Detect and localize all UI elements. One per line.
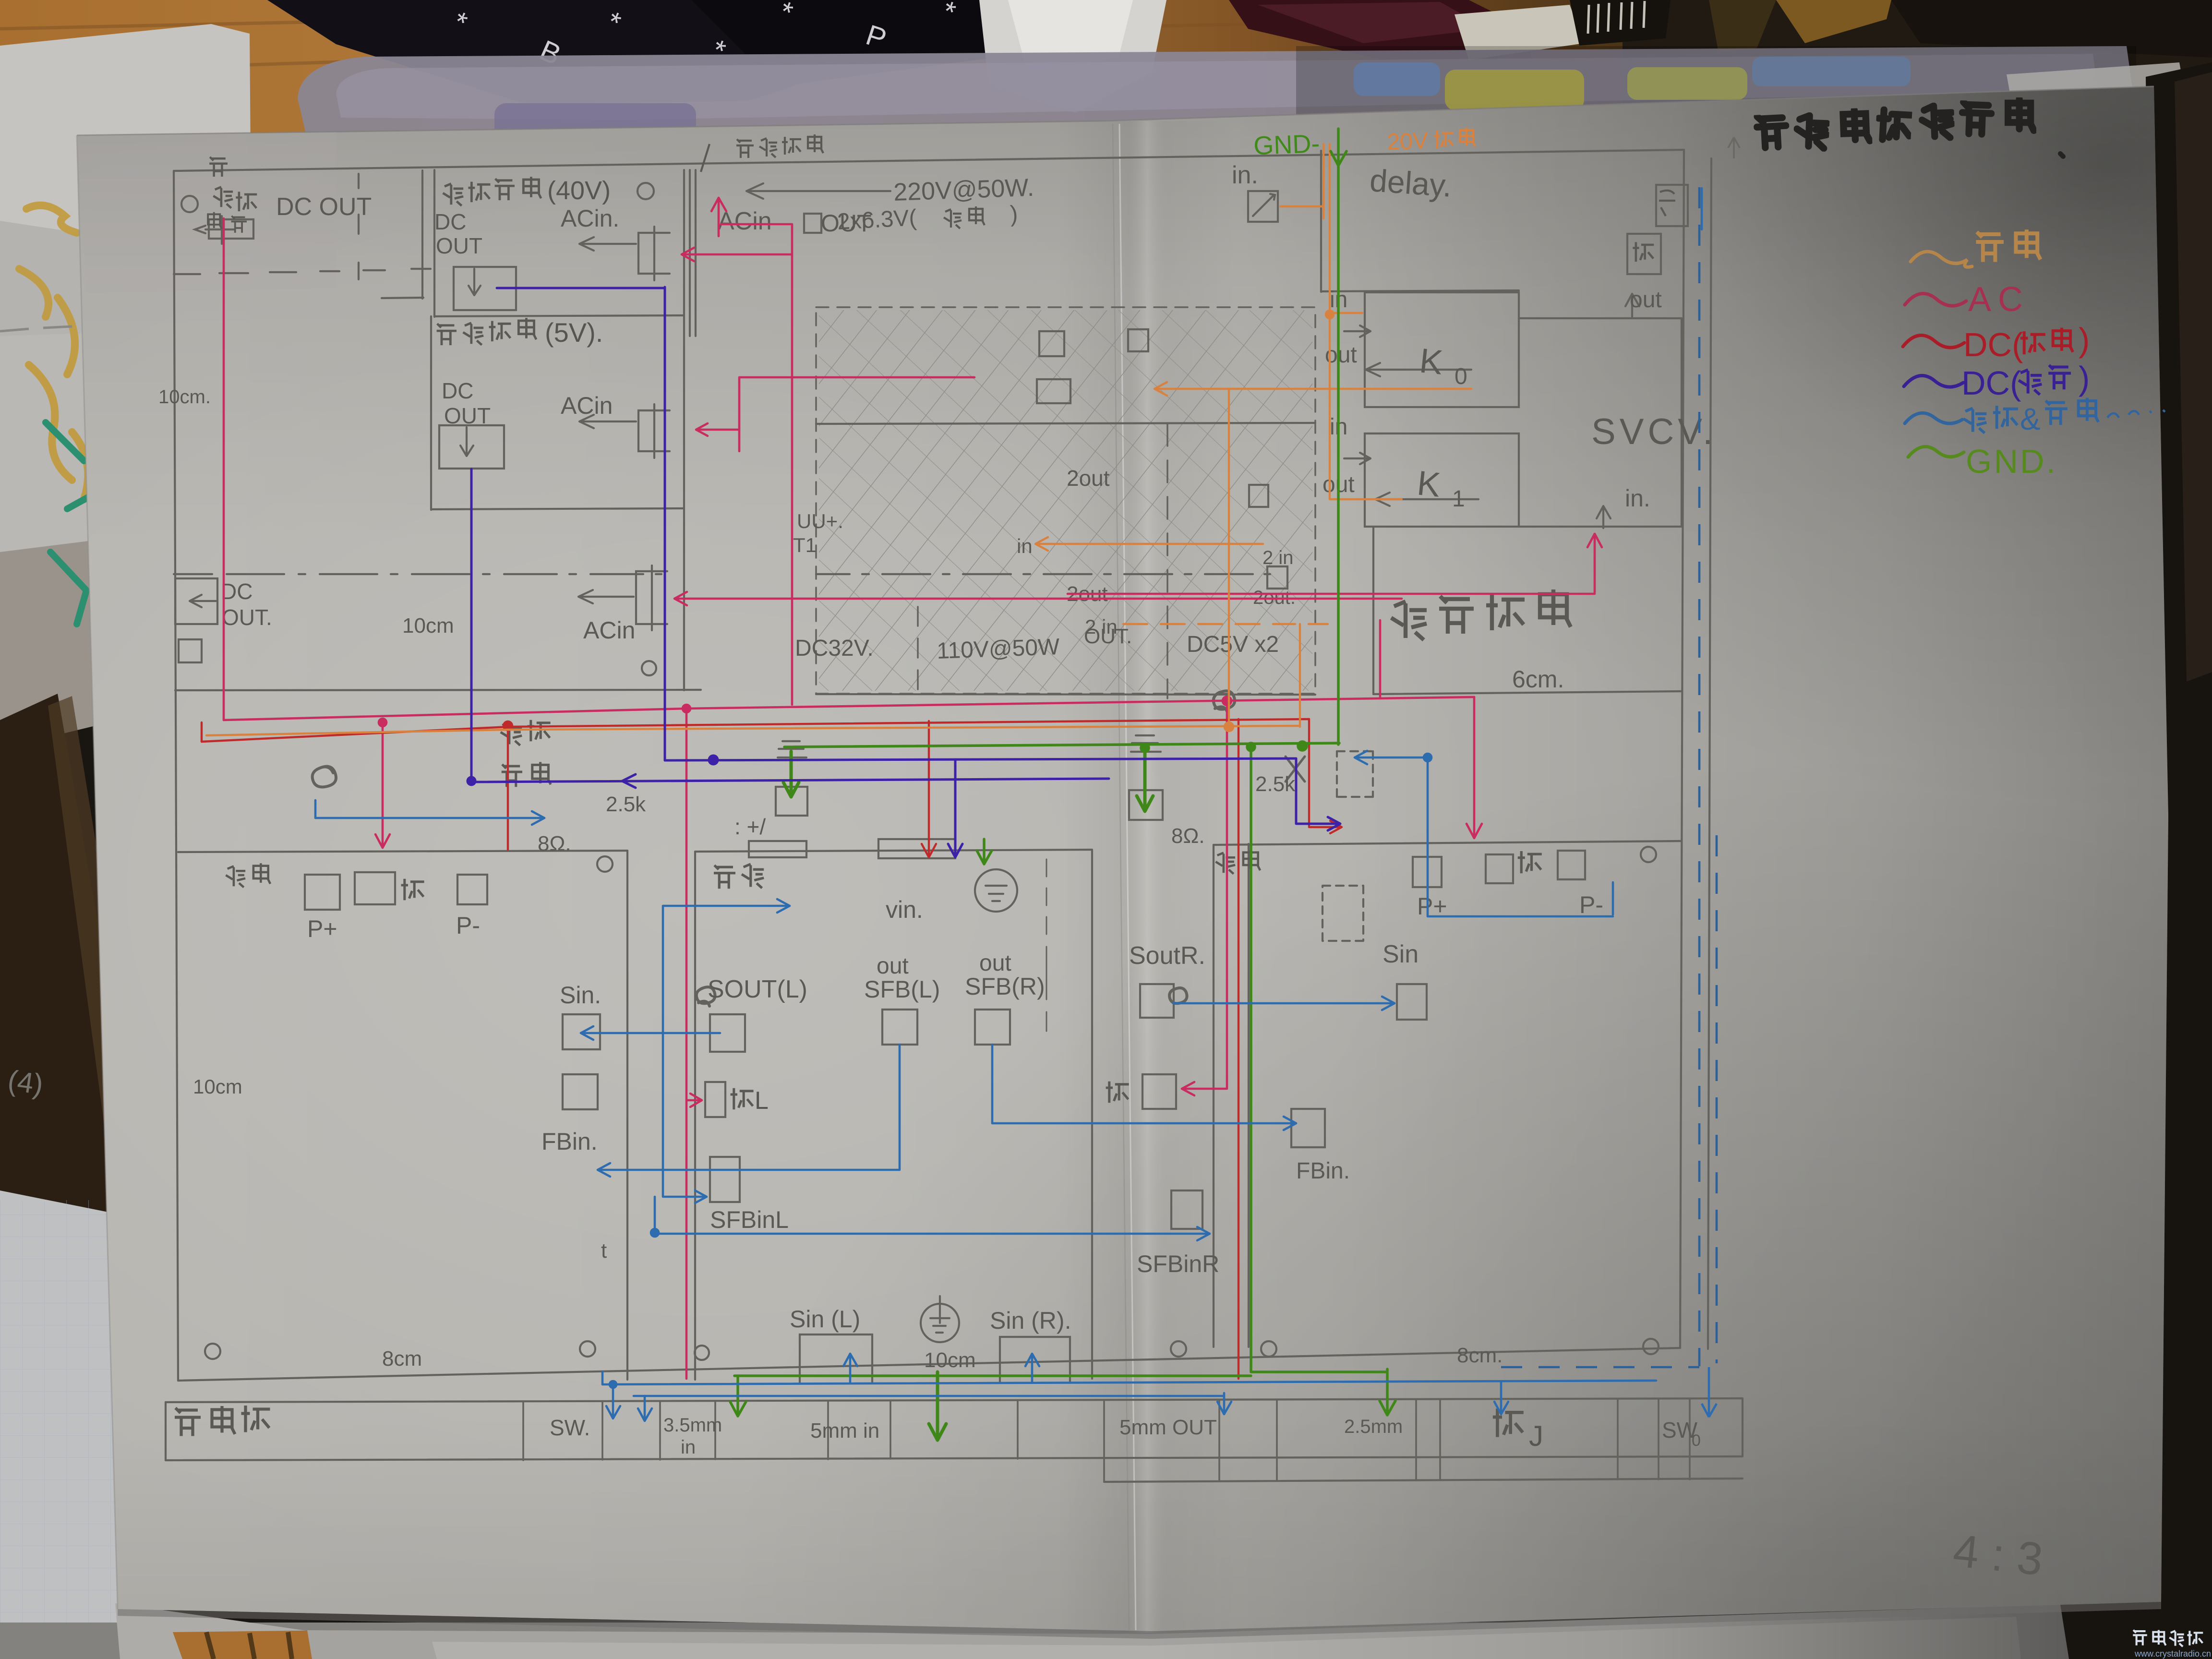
svg-text:Sin.: Sin. — [560, 982, 601, 1009]
svg-text:): ) — [1010, 201, 1019, 227]
svg-text:2.5k: 2.5k — [606, 793, 646, 816]
svg-text:10cm: 10cm — [924, 1348, 976, 1372]
svg-text:UU+.: UU+. — [797, 510, 843, 532]
svg-text:1: 1 — [1452, 486, 1465, 512]
svg-text:(40V): (40V) — [547, 176, 611, 205]
svg-text:Sin: Sin — [1382, 940, 1419, 968]
svg-text:10cm.: 10cm. — [158, 386, 211, 408]
svg-text:SW.: SW. — [550, 1415, 590, 1440]
svg-text:DC(: DC( — [1963, 326, 2023, 363]
svg-text:J: J — [1529, 1420, 1543, 1452]
svg-text:GND.: GND. — [1966, 443, 2057, 480]
svg-text:K: K — [1418, 341, 1444, 382]
svg-text:AC: AC — [1968, 280, 2030, 319]
svg-text:P-: P- — [456, 912, 480, 939]
svg-text:ACin.: ACin. — [561, 205, 619, 232]
svg-text:Sin (L): Sin (L) — [790, 1306, 860, 1333]
svg-text:8Ω.: 8Ω. — [1171, 824, 1205, 848]
svg-text:DC: DC — [434, 209, 466, 234]
svg-text:OUT.: OUT. — [1084, 625, 1132, 648]
svg-text:SFB(L): SFB(L) — [864, 976, 940, 1003]
svg-text:(4): (4) — [6, 1064, 45, 1101]
svg-text:&: & — [2020, 402, 2041, 436]
svg-text:out: out — [1630, 287, 1662, 313]
svg-text:ACin: ACin — [583, 617, 635, 644]
svg-text:2.5k: 2.5k — [1255, 772, 1296, 796]
svg-text:DC: DC — [442, 378, 473, 403]
svg-text:SOUT(L): SOUT(L) — [708, 975, 807, 1003]
svg-text:2.5mm: 2.5mm — [1344, 1416, 1403, 1437]
svg-text:SFBinR: SFBinR — [1137, 1250, 1219, 1277]
svg-text:0: 0 — [1692, 1431, 1701, 1450]
svg-text:2 in: 2 in — [1262, 547, 1294, 568]
svg-text:GND-: GND- — [1253, 129, 1320, 160]
svg-text:P-: P- — [1579, 891, 1603, 918]
svg-text:FBin.: FBin. — [541, 1128, 598, 1155]
svg-text:in.: in. — [1232, 161, 1258, 189]
svg-text:5mm in: 5mm in — [810, 1419, 879, 1443]
svg-text:: +/: : +/ — [734, 814, 766, 839]
svg-text:vin.: vin. — [886, 896, 923, 923]
svg-text:DC OUT: DC OUT — [276, 193, 372, 221]
svg-text:P+: P+ — [307, 915, 337, 942]
svg-text:OUT: OUT — [436, 233, 482, 258]
svg-text:FBin.: FBin. — [1296, 1158, 1350, 1184]
svg-text:6cm.: 6cm. — [1512, 666, 1564, 693]
svg-text:in.: in. — [1625, 485, 1650, 512]
svg-text:DC(: DC( — [1961, 364, 2021, 402]
svg-text:Sin (R).: Sin (R). — [990, 1307, 1071, 1334]
svg-text:OUT.: OUT. — [222, 605, 272, 630]
svg-text:SoutR.: SoutR. — [1129, 942, 1205, 970]
svg-text:t: t — [601, 1239, 607, 1262]
svg-text:out: out — [979, 950, 1011, 976]
svg-text:8cm: 8cm — [382, 1347, 422, 1370]
svg-text:SVCV.: SVCV. — [1591, 411, 1717, 452]
svg-text:in: in — [1017, 535, 1033, 557]
svg-text:0: 0 — [1455, 364, 1467, 389]
svg-text:): ) — [2079, 360, 2090, 397]
svg-text:8Ω.: 8Ω. — [538, 832, 571, 855]
svg-text:delay.: delay. — [1369, 162, 1453, 204]
svg-text:DC5V x2: DC5V x2 — [1187, 632, 1279, 657]
svg-text:5mm OUT: 5mm OUT — [1119, 1416, 1217, 1439]
svg-text:10cm: 10cm — [193, 1075, 242, 1098]
svg-text:T1: T1 — [793, 534, 817, 556]
svg-text:110V@50W: 110V@50W — [937, 634, 1060, 664]
svg-text:20V: 20V — [1387, 128, 1429, 155]
svg-text:): ) — [2079, 321, 2090, 359]
svg-text:8cm.: 8cm. — [1457, 1344, 1503, 1367]
svg-text:www.crystalradio.cn: www.crystalradio.cn — [2134, 1649, 2211, 1659]
svg-text:3.5mm: 3.5mm — [663, 1415, 722, 1436]
svg-text:SFB(R): SFB(R) — [965, 973, 1045, 1000]
svg-text:4 : 3: 4 : 3 — [1951, 1525, 2045, 1585]
svg-text:2x6.3V(: 2x6.3V( — [837, 205, 917, 235]
svg-text:DC: DC — [221, 579, 252, 604]
svg-text:(5V).: (5V). — [545, 317, 603, 348]
svg-text:DC32V.: DC32V. — [795, 636, 874, 661]
svg-text:10cm: 10cm — [402, 614, 454, 637]
svg-text:ACin: ACin — [561, 392, 613, 419]
svg-text:out: out — [877, 953, 909, 979]
svg-text:in: in — [681, 1437, 696, 1458]
svg-text:OUT: OUT — [444, 403, 491, 428]
svg-text:K: K — [1415, 464, 1442, 505]
svg-text:SFBinL: SFBinL — [710, 1206, 789, 1233]
svg-text:2out: 2out — [1067, 466, 1110, 491]
svg-text:L: L — [755, 1087, 769, 1115]
